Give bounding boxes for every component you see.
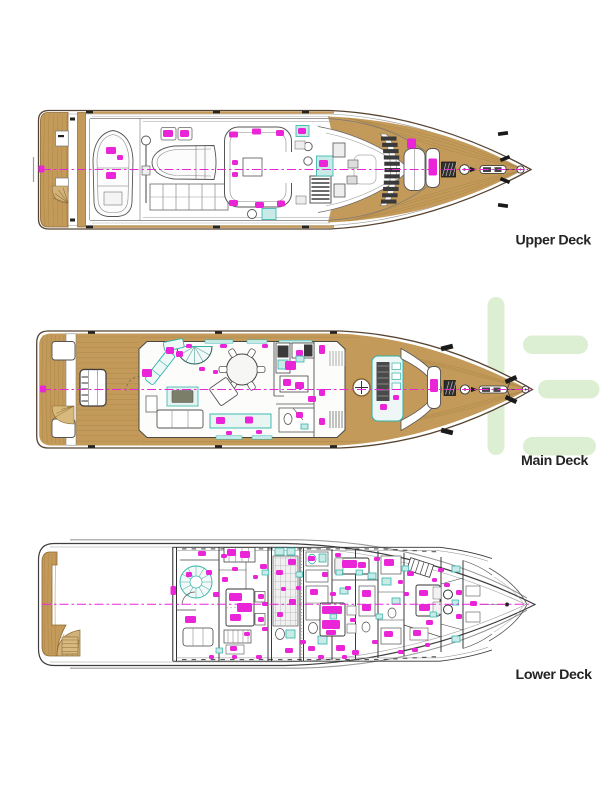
svg-text:Upper Deck: Upper Deck <box>516 233 592 249</box>
svg-text:Main Deck: Main Deck <box>521 453 588 469</box>
svg-text:Lower Deck: Lower Deck <box>516 667 593 683</box>
